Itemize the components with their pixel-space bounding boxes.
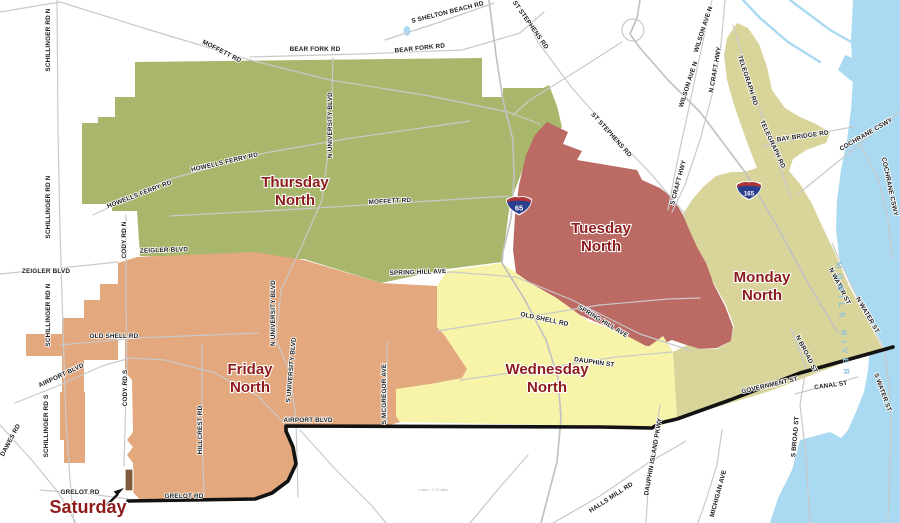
road-label-cody-rd-n: CODY RD N: [121, 221, 128, 258]
map-canvas: SCHILLINGER RD NSCHILLINGER RD NSCHILLIN…: [0, 0, 900, 523]
road-label-hillcrest-rd: HILLCREST RD: [197, 405, 204, 454]
road-label-st-stephens-rd: ST STEPHENS RD: [589, 111, 633, 159]
road-label-s-mcgregor-ave: S MCGREGOR AVE: [381, 363, 388, 424]
road-line: [470, 455, 528, 523]
road-line: [300, 430, 386, 523]
road-label-grelot-rd: GRELOT RD: [165, 493, 204, 500]
shield-number: 165: [744, 191, 755, 198]
road-label-bear-fork-rd: BEAR FORK RD: [394, 42, 445, 54]
road-label-n-university-blvd: N UNIVERSITY BLVD: [327, 92, 334, 158]
zone-friday-north-west-arm: [62, 263, 118, 360]
road-label-n-craft-hwy: N CRAFT HWY: [708, 46, 723, 93]
saturday-arrowhead: [114, 488, 124, 496]
road-label-grelot-rd: GRELOT RD: [61, 489, 100, 496]
road-label-schillinger-rd-s: SCHILLINGER RD S: [43, 394, 50, 457]
road-label-airport-blvd: AIRPORT BLVD: [283, 417, 332, 424]
scale-note: 1 inch = 1.75 miles: [418, 488, 448, 492]
zone-saturday-bar: [125, 469, 133, 491]
dock-slip: [844, 243, 865, 247]
road-line: [553, 441, 686, 523]
road-label-cody-rd-s: CODY RD S: [122, 369, 129, 406]
pond: [404, 26, 411, 36]
dock-slip: [850, 271, 868, 275]
creek-branch: [790, 0, 862, 48]
road-label-n-university-blvd: N UNIVERSITY BLVD: [270, 280, 277, 346]
road-label-halls-mill-rd: HALLS MILL RD: [588, 481, 635, 515]
road-label-spring-hill-ave: SPRING HILL AVE: [389, 268, 447, 277]
road-label-wilson-ave-n: WILSON AVE N: [693, 5, 715, 53]
road-label-schillinger-rd-n: SCHILLINGER RD N: [45, 175, 52, 238]
zone-label-friday-north: FridayNorth: [227, 361, 273, 396]
collection-route-map: SCHILLINGER RD NSCHILLINGER RD NSCHILLIN…: [0, 0, 900, 523]
road-label-michigan-ave: MICHIGAN AVE: [709, 469, 728, 518]
road-label-st-stephens-rd: ST STEPHENS RD: [511, 0, 550, 51]
road-label-s-shelton-beach-rd: S SHELTON BEACH RD: [411, 0, 485, 25]
road-label-zeigler-blvd: ZEIGLER BLVD: [22, 268, 70, 275]
road-label-schillinger-rd-n: SCHILLINGER RD N: [45, 283, 52, 346]
lagoon: [770, 432, 862, 523]
road-label-schillinger-rd-n: SCHILLINGER RD N: [45, 8, 52, 71]
shield-number: 65: [515, 204, 523, 213]
zone-friday-north-west-tab: [26, 334, 62, 356]
road-label-canal-st: CANAL ST: [814, 380, 848, 392]
road-label-bear-fork-rd: BEAR FORK RD: [290, 46, 341, 53]
dock-slip: [847, 257, 866, 261]
dock-slip: [853, 285, 869, 289]
zone-label-saturday: Saturday: [49, 497, 126, 517]
road-label-old-shell-rd: OLD SHELL RD: [90, 333, 139, 340]
